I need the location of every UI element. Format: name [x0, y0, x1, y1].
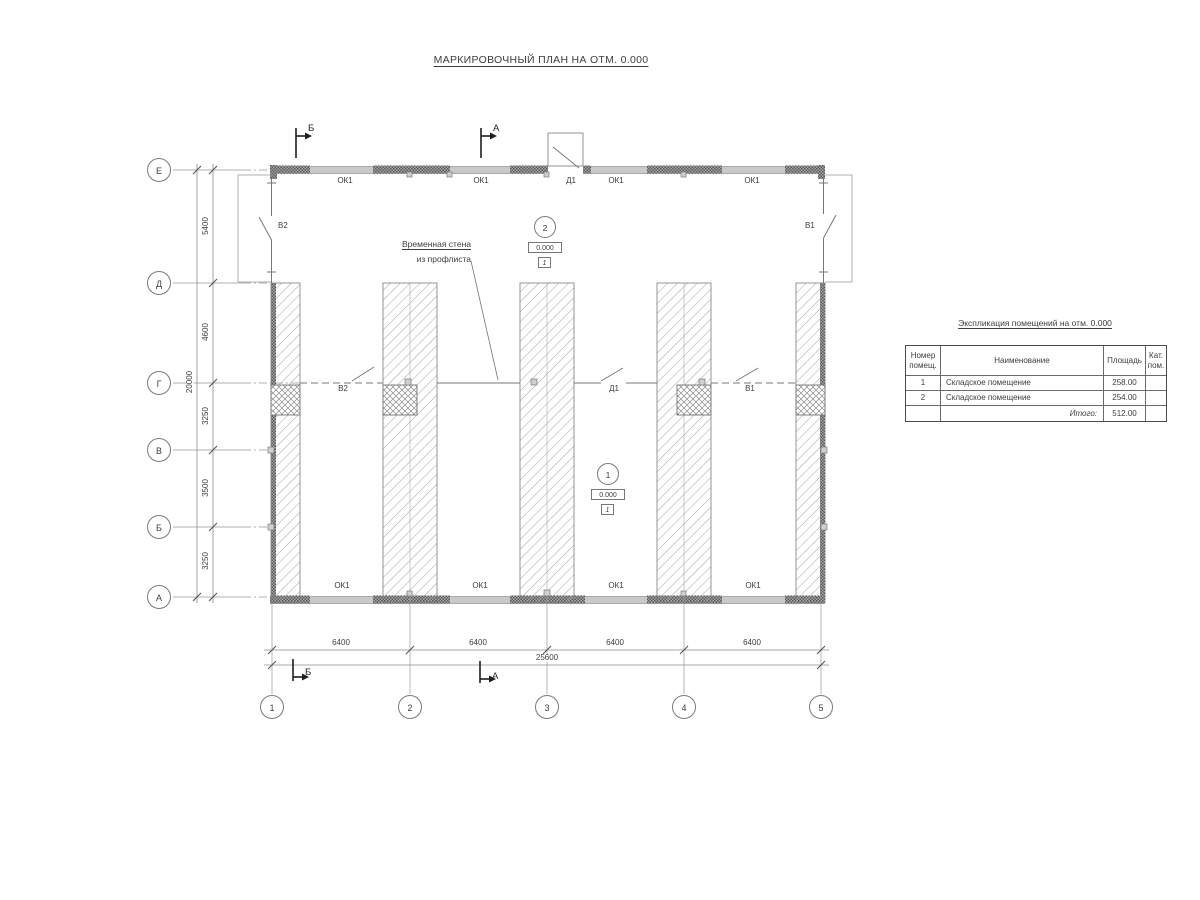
- axis-lines-cols: [272, 602, 821, 694]
- window-label-top-2: ОК1: [461, 177, 501, 185]
- gate-left-swing: [259, 177, 276, 283]
- section-letter-b-bottom: Б: [305, 668, 311, 678]
- window-label-bottom-3: ОК1: [596, 582, 636, 590]
- room-2-floor-type: 1: [538, 257, 551, 268]
- window-label-top-1: ОК1: [325, 177, 365, 185]
- schedule-row-2-area: 254.00: [1104, 391, 1146, 406]
- gate-label-left-v2: В2: [278, 222, 288, 230]
- room-1-elevation: 0.000: [591, 489, 625, 500]
- window-label-bottom-4: ОК1: [733, 582, 773, 590]
- axis-bubble-row-g: Г: [147, 371, 171, 395]
- dim-bottom-4: 6400: [732, 639, 772, 647]
- window-label-bottom-1: ОК1: [322, 582, 362, 590]
- page-title: МАРКИРОВОЧНЫЙ ПЛАН НА ОТМ. 0.000: [391, 54, 691, 66]
- annotation-line-2: из профлиста: [341, 255, 471, 264]
- section-letter-a-bottom: А: [492, 672, 498, 682]
- gate-label-mid-v2: В2: [323, 385, 363, 393]
- room-1-number: 1: [597, 463, 619, 485]
- schedule-total-value: 512.00: [1104, 406, 1146, 421]
- axis-bubble-row-d: Д: [147, 271, 171, 295]
- section-letter-b-top: Б: [308, 124, 314, 134]
- schedule-total-category-spacer: [1146, 406, 1166, 421]
- left-wall: [271, 283, 300, 602]
- entrance-porch: [548, 133, 583, 168]
- schedule-total-spacer: [906, 406, 941, 421]
- window-label-top-4: ОК1: [732, 177, 772, 185]
- axis-bubble-col-4: 4: [672, 695, 696, 719]
- schedule-row-1-area: 258.00: [1104, 376, 1146, 391]
- dim-bottom-total: 25600: [527, 654, 567, 662]
- dim-left-2: 4600: [202, 312, 210, 352]
- dim-bottom-3: 6400: [595, 639, 635, 647]
- schedule-total-label: Итого:: [941, 406, 1104, 421]
- schedule-row-1-number: 1: [906, 376, 941, 391]
- dim-bottom-2: 6400: [458, 639, 498, 647]
- schedule-row-2-number: 2: [906, 391, 941, 406]
- schedule-header-name: Наименование: [941, 346, 1104, 376]
- gate-label-right-v1: В1: [805, 222, 815, 230]
- dim-left-4: 3500: [202, 468, 210, 508]
- schedule-header-area: Площадь: [1104, 346, 1146, 376]
- room-2-elevation: 0.000: [528, 242, 562, 253]
- section-letter-a-top: А: [493, 124, 499, 134]
- schedule-header-number: Номер помещ.: [906, 346, 941, 376]
- axis-bubble-col-3: 3: [535, 695, 559, 719]
- floor-plan-drawing: [0, 0, 1200, 900]
- room-schedule-table: Номер помещ. Наименование Площадь Кат. п…: [905, 345, 1167, 422]
- dim-left-total: 20000: [186, 362, 194, 402]
- axis-bubble-row-b: Б: [147, 515, 171, 539]
- dim-left-5: 3250: [202, 541, 210, 581]
- dim-left-1: 5400: [202, 206, 210, 246]
- schedule-title: Экспликация помещений на отм. 0.000: [905, 318, 1165, 328]
- right-wall: [796, 283, 825, 602]
- schedule-row-1-name: Складское помещение: [941, 376, 1104, 391]
- room-1-floor-type: 1: [601, 504, 614, 515]
- schedule-row-1-category: [1146, 376, 1166, 391]
- room-2-number: 2: [534, 216, 556, 238]
- axis-bubble-row-e: Е: [147, 158, 171, 182]
- window-label-top-3: ОК1: [596, 177, 636, 185]
- door-label-top: Д1: [551, 177, 591, 185]
- column-strips: [383, 283, 711, 602]
- schedule-row-2-category: [1146, 391, 1166, 406]
- window-label-bottom-2: ОК1: [460, 582, 500, 590]
- annotation-line-1: Временная стена: [341, 240, 471, 249]
- axis-bubble-col-5: 5: [809, 695, 833, 719]
- gate-right-swing: [819, 177, 836, 283]
- axis-bubble-col-1: 1: [260, 695, 284, 719]
- drawing-sheet: { "sheet": { "title": "МАРКИРОВОЧНЫЙ ПЛА…: [0, 0, 1200, 900]
- gate-label-mid-v1: В1: [730, 385, 770, 393]
- annotation-leader-line: [471, 261, 498, 380]
- axis-bubble-row-v: В: [147, 438, 171, 462]
- dim-left-3: 3250: [202, 396, 210, 436]
- axis-bubble-col-2: 2: [398, 695, 422, 719]
- schedule-header-category: Кат. пом.: [1146, 346, 1166, 376]
- dim-bottom-1: 6400: [321, 639, 361, 647]
- schedule-row-2-name: Складское помещение: [941, 391, 1104, 406]
- axis-bubble-row-a: А: [147, 585, 171, 609]
- door-label-mid-d1: Д1: [594, 385, 634, 393]
